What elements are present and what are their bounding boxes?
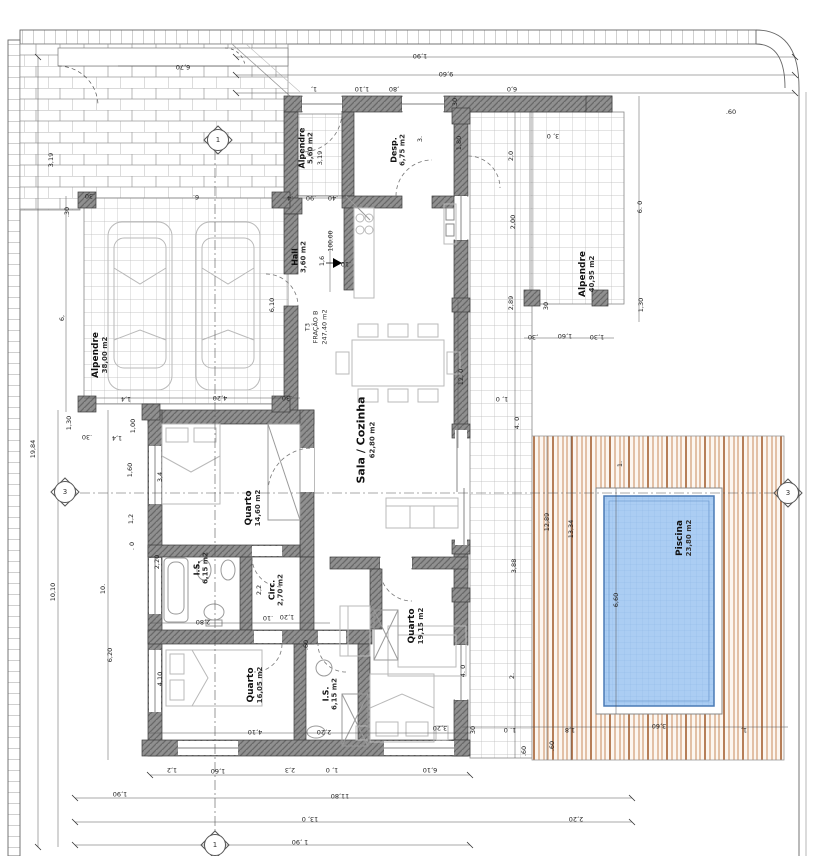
- bathtub: [164, 558, 235, 626]
- dining-table: [336, 324, 460, 402]
- floor-plan-page: T3 FRAÇÃO B 247,40 m2 100.00 6,701,909,6…: [0, 0, 816, 856]
- kitchen-counter: [346, 196, 456, 298]
- level-marker-symbol: [326, 258, 344, 268]
- bed: [166, 650, 262, 706]
- bed: [356, 674, 448, 742]
- floor-plan-drawing: [0, 0, 816, 856]
- pool: [596, 488, 722, 714]
- entry-paving: [20, 44, 300, 210]
- bed: [162, 424, 220, 504]
